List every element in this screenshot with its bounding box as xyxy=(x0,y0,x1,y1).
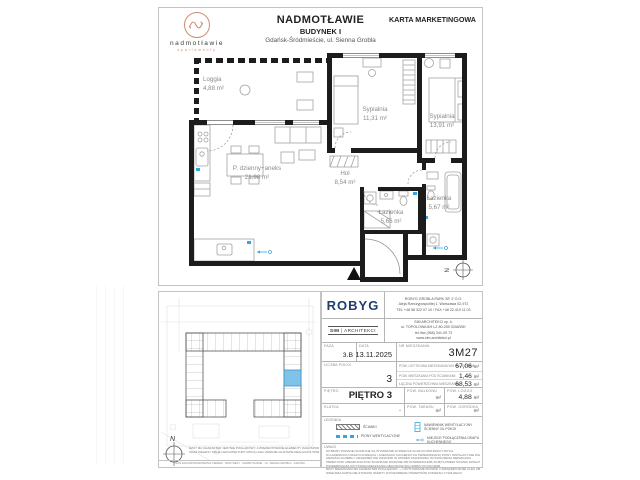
date-label: DATA xyxy=(359,344,369,348)
developer-street: Aleja Rzeczypospolitej 1, Warszawa 02-97… xyxy=(396,302,470,307)
room-area: 5,66 m² xyxy=(381,218,402,225)
room-area: 4,88 m² xyxy=(203,85,224,92)
garden-area-cell: POW. OGRÓDKA m² xyxy=(444,403,482,416)
floor-plan-panel: nadmotławie apartamenty NADMOTŁAWIE BUDY… xyxy=(158,7,483,286)
site-plan-footer-note: PLAN ZAGOSPODAROWANIA TERENU · BUDYNEK I… xyxy=(159,460,320,467)
loggia-area-value: 4,88 xyxy=(459,394,472,401)
wave-logo-icon xyxy=(184,12,210,38)
room-count-value: 3 xyxy=(386,374,392,385)
faza-cell: FAZA 3.B xyxy=(322,342,356,361)
loggia-area-cell: POW. LOGGII 4,88 m² xyxy=(444,387,482,403)
note-line: NINIEJSZA KARTA NIE STANOWI OFERTY W ROZ… xyxy=(326,472,480,476)
usable-area-value: 67,06 xyxy=(455,363,472,370)
room-area: 8,54 m² xyxy=(335,179,356,186)
developer-address-cell: ROBYG GROBLA PARK SP. Z O.O. Aleja Rzecz… xyxy=(384,292,482,318)
architect-logo-cell: SIM | ARCHITEKCI xyxy=(322,318,384,342)
architect-website: www.sim-architekci.pl xyxy=(401,336,466,341)
walls-swatch-icon xyxy=(336,424,360,430)
terrace-area-label: POW. TARASU xyxy=(407,405,434,409)
robyg-logo: ROBYG xyxy=(327,298,380,313)
entrance-arrow-icon xyxy=(347,267,361,280)
floor-label: PIĘTRO xyxy=(324,389,339,393)
faza-value: 3.B xyxy=(343,352,353,359)
room-area: 21,98 m² xyxy=(245,174,269,181)
notes-title: UWAGI xyxy=(324,445,336,449)
room-label: Hol xyxy=(340,170,349,177)
terrace-area-cell: POW. TARASU m² xyxy=(404,403,444,416)
loggia-area-label: POW. LOGGII xyxy=(447,389,472,393)
legend-item-risers: PIONY WENTYLACYJNE xyxy=(336,434,400,438)
vent-risers-swatch-icon xyxy=(336,435,358,438)
garden-area-unit: m² xyxy=(474,408,479,413)
walls-area-label: POW. MIESZKANIA POD ŚCIANKAMI xyxy=(399,374,455,378)
legend-item-walls: ŚCIANKI xyxy=(336,424,377,430)
highlighted-unit xyxy=(284,370,301,386)
faza-label: FAZA xyxy=(324,344,334,348)
legend-cell: LEGENDA ŚCIANKI PIONY WENTYLACYJNE NAWIE… xyxy=(322,416,482,443)
apartment-floor-plan: N Loggia 4,88 m² P. dzienny+aneks 21,98 … xyxy=(177,48,477,283)
building-title: BUDYNEK I xyxy=(219,27,422,36)
sim-architekci-logo: SIM | ARCHITEKCI xyxy=(328,326,378,335)
walls-area-unit: m² xyxy=(474,374,479,379)
loggia-area-unit: m² xyxy=(474,395,479,400)
apartment-number-label: NR MIESZKANIA xyxy=(399,344,430,348)
architect-address-cell: SIM ARCHITEKCI sp. k. ul. TOPOLOWA 8/9 L… xyxy=(384,318,482,342)
site-compass-label: N xyxy=(170,436,176,443)
notes-cell: UWAGI WYMIARY PODANE NA RZUCIE SĄ WYMIAR… xyxy=(322,443,482,468)
site-plan-drawing: N xyxy=(159,292,320,467)
developer-logo-cell: ROBYG xyxy=(322,292,384,318)
site-note-line: ORAZ ZIELENI I MAŁEJ ARCHITEKTURY MOGĄ U… xyxy=(189,451,319,455)
date-value: 13.11.2025 xyxy=(356,350,392,359)
room-area: 11,31 m² xyxy=(363,115,387,122)
project-address: Gdańsk-Śródmieście, ul. Sienna Grobla xyxy=(219,37,422,44)
legend-title: LEGENDA xyxy=(324,418,341,422)
site-plan-notes: RZUT MA CHARAKTER JEDYNIE POGLĄDOWY, A P… xyxy=(189,447,319,455)
plan-compass-label: N xyxy=(445,268,451,272)
stairwell-door-arc xyxy=(365,239,400,274)
architect-street: ul. TOPOLOWA 8/9 LZ 80-255 GDAŃSK xyxy=(401,325,466,330)
legend-inlet-label2: GŁ.POKOI xyxy=(440,427,456,431)
balcony-area-unit: m² xyxy=(436,395,441,400)
room-label: Łazienka xyxy=(379,209,404,216)
usable-area-row: POW. UŻYTKOWA MIESZKANIA WG PN-ISO 9836 … xyxy=(397,362,482,371)
staircase-label: KLATKA xyxy=(324,405,339,409)
developer-phone: TEL +48 58 322 07 10 / FAX +48 22 419 11… xyxy=(396,308,470,313)
legend-risers-label: PIONY WENTYLACYJNE xyxy=(361,434,400,438)
room-label: Łazienka xyxy=(427,195,452,202)
doc-type-label: KARTA MARKETINGOWA xyxy=(389,15,476,24)
wall-vent-inlet-icon xyxy=(414,422,421,432)
usable-area-unit: m² xyxy=(474,364,479,369)
room-count-cell: LICZBA POKOI 3 xyxy=(322,361,396,387)
terrace-area-unit: m² xyxy=(436,408,441,413)
total-area-label: ŁĄCZNA POWIERZCHNIA MIESZKANIA xyxy=(399,382,459,386)
room-area: 5,67 m² xyxy=(429,204,450,211)
apartment-number-cell: NR MIESZKANIA 3M27 xyxy=(396,342,482,361)
sim-logo-text-b: ARCHITEKCI xyxy=(344,328,376,333)
apartment-number-value: 3M27 xyxy=(448,347,478,359)
balcony-area-cell: POW. BALKONU m² xyxy=(404,387,444,403)
marketing-card-page: nadmotławie apartamenty NADMOTŁAWIE BUDY… xyxy=(0,0,640,480)
notes-lines: WYMIARY PODANE NA RZUCIE SĄ WYMIARAMI W … xyxy=(326,450,480,476)
page-edge-artifact xyxy=(96,286,132,464)
floor-value: PIĘTRO 3 xyxy=(349,390,392,401)
balcony-area-label: POW. BALKONU xyxy=(407,389,437,393)
site-plan-panel: N RZUT MA CHARAKTER JEDYNIE POGLĄDOWY, A… xyxy=(158,291,321,468)
room-label: Sypialnia xyxy=(429,113,455,120)
legend-item-inlet: NAWIEWNIK WENTYLACYJNY ŚCIENNY GŁ.POKOI xyxy=(414,422,476,432)
title-block-panel: ROBYG ROBYG GROBLA PARK SP. Z O.O. Aleja… xyxy=(321,291,483,468)
room-area: 13,91 m² xyxy=(430,122,454,129)
date-cell: DATA 13.11.2025 xyxy=(356,342,396,361)
staircase-value: - xyxy=(399,408,401,414)
room-count-label: LICZBA POKOI xyxy=(324,363,351,367)
room-label: Loggia xyxy=(203,76,222,83)
areas-cell: POW. UŻYTKOWA MIESZKANIA WG PN-ISO 9836 … xyxy=(396,361,482,387)
sim-logo-text-a: SIM xyxy=(330,328,339,333)
floor-cell: PIĘTRO PIĘTRO 3 xyxy=(322,387,404,403)
legend-walls-label: ŚCIANKI xyxy=(363,425,377,429)
wave-icon xyxy=(189,20,205,30)
room-label: P. dzienny+aneks xyxy=(233,165,281,172)
staircase-cell: KLATKA - xyxy=(322,403,404,416)
room-label: Sypialnia xyxy=(362,106,388,113)
plan-compass-icon: N xyxy=(445,260,473,280)
